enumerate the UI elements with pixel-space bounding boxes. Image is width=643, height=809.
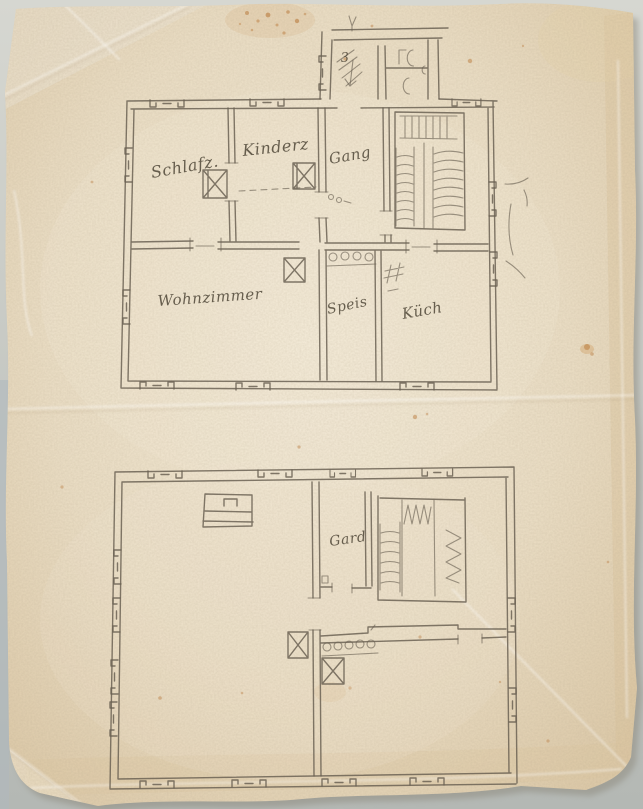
floor-plan-sketch: 3 Schlafz. Kinderz Gang Wohnzimmer Speis… [0,0,643,809]
annex-stair-count: 3 [340,50,350,66]
paper-aging [0,0,643,809]
paper-sheet [0,0,643,809]
scanned-sheet-stage: 3 Schlafz. Kinderz Gang Wohnzimmer Speis… [0,0,643,809]
